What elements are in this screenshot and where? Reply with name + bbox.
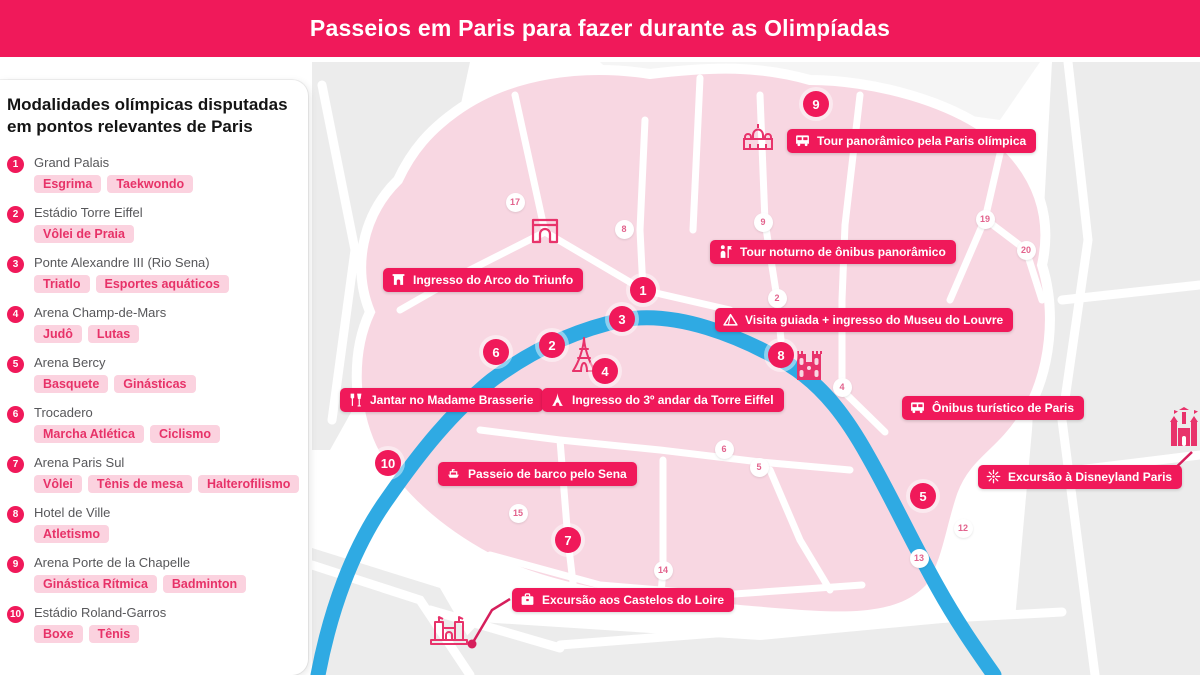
legend-item: 1Grand PalaisEsgrimaTaekwondo [7,155,308,193]
district-marker: 19 [976,210,995,229]
legend-item: 9Arena Porte de la ChapelleGinástica Rít… [7,555,308,593]
venue-number-badge: 3 [7,256,24,273]
sport-tag: Basquete [34,375,108,393]
tour-label-text: Tour noturno de ônibus panorâmico [740,245,946,259]
district-marker: 14 [654,561,673,580]
venue-marker: 8 [768,342,794,368]
sport-tag: Atletismo [34,525,109,543]
venue-name: Arena Paris Sul [34,455,299,470]
bus-icon [795,133,810,148]
sport-tags: Atletismo [34,525,110,543]
sport-tag: Badminton [163,575,246,593]
venue-name: Arena Bercy [34,355,196,370]
header-bar: Passeios em Paris para fazer durante as … [0,0,1200,57]
district-marker: 9 [754,213,773,232]
district-marker: 8 [615,220,634,239]
sport-tag: Triatlo [34,275,90,293]
briefcase-icon [520,592,535,607]
venue-name: Ponte Alexandre III (Rio Sena) [34,255,229,270]
sport-tag: Taekwondo [107,175,193,193]
sparkle-icon [986,469,1001,484]
venue-marker: 9 [803,91,829,117]
sport-tag: Tênis [89,625,140,643]
sport-tag: Ginástica Rítmica [34,575,157,593]
legend-title-line2: em pontos relevantes de Paris [7,117,253,136]
sport-tag: Vôlei [34,475,82,493]
sport-tag: Lutas [88,325,139,343]
legend-title-line1: Modalidades olímpicas disputadas [7,95,288,114]
tour-label: Tour panorâmico pela Paris olímpica [787,129,1036,153]
legend-item: 3Ponte Alexandre III (Rio Sena)TriatloEs… [7,255,308,293]
venue-name: Grand Palais [34,155,193,170]
venue-marker: 4 [592,358,618,384]
venue-number-badge: 4 [7,306,24,323]
legend-panel: Modalidades olímpicas disputadas em pont… [0,80,308,675]
tour-label-text: Ingresso do Arco do Triunfo [413,273,573,287]
notre-dame-icon [793,348,825,387]
sport-tag: Halterofilismo [198,475,299,493]
tour-label-text: Excursão à Disneyland Paris [1008,470,1172,484]
legend-item: 10Estádio Roland-GarrosBoxeTênis [7,605,308,643]
sport-tag: Marcha Atlética [34,425,144,443]
sport-tags: Vôlei de Praia [34,225,143,243]
venue-name: Estádio Torre Eiffel [34,205,143,220]
sport-tags: EsgrimaTaekwondo [34,175,193,193]
tour-label: Ônibus turístico de Paris [902,396,1084,420]
sport-tags: TriatloEsportes aquáticos [34,275,229,293]
legend-item: 5Arena BercyBasqueteGinásticas [7,355,308,393]
legend-item: 4Arena Champ-de-MarsJudôLutas [7,305,308,343]
legend-item: 2Estádio Torre EiffelVôlei de Praia [7,205,308,243]
sport-tag: Ciclismo [150,425,220,443]
venue-name: Arena Porte de la Chapelle [34,555,246,570]
district-marker: 15 [509,504,528,523]
sport-tag: Esportes aquáticos [96,275,229,293]
tour-label: Tour noturno de ônibus panorâmico [710,240,956,264]
district-marker: 12 [954,519,973,538]
sport-tag: Judô [34,325,82,343]
venue-number-badge: 10 [7,606,24,623]
venue-number-badge: 8 [7,506,24,523]
venue-number-badge: 5 [7,356,24,373]
venue-name: Arena Champ-de-Mars [34,305,166,320]
venue-number-badge: 2 [7,206,24,223]
boat-icon [446,466,461,481]
venue-number-badge: 6 [7,406,24,423]
venue-marker: 2 [539,332,565,358]
arch-icon [391,272,406,287]
sport-tags: BasqueteGinásticas [34,375,196,393]
loire-castle-icon [428,610,470,651]
legend-title: Modalidades olímpicas disputadas em pont… [7,94,308,139]
sacre-coeur-icon [741,120,775,157]
venue-marker: 10 [375,450,401,476]
tour-label-text: Jantar no Madame Brasserie [370,393,533,407]
sport-tags: Ginástica RítmicaBadminton [34,575,246,593]
legend-item: 8Hotel de VilleAtletismo [7,505,308,543]
sport-tag: Vôlei de Praia [34,225,134,243]
venue-name: Hotel de Ville [34,505,110,520]
district-marker: 6 [715,440,734,459]
sport-tag: Ginásticas [114,375,195,393]
bus-icon [910,400,925,415]
tour-label-text: Excursão aos Castelos do Loire [542,593,724,607]
tour-label: Jantar no Madame Brasserie [340,388,543,412]
venue-number-badge: 9 [7,556,24,573]
tour-label-text: Passeio de barco pelo Sena [468,467,627,481]
venue-marker: 7 [555,527,581,553]
venue-marker: 1 [630,277,656,303]
sport-tag: Esgrima [34,175,101,193]
district-marker: 13 [910,549,929,568]
tour-label: Excursão à Disneyland Paris [978,465,1182,489]
venue-number-badge: 7 [7,456,24,473]
tour-label-text: Tour panorâmico pela Paris olímpica [817,134,1026,148]
fork-glass-icon [348,392,363,407]
district-marker: 5 [750,458,769,477]
tour-label: Excursão aos Castelos do Loire [512,588,734,612]
eiffel-icon [550,392,565,407]
venue-name: Estádio Roland-Garros [34,605,166,620]
tour-label: Passeio de barco pelo Sena [438,462,637,486]
sport-tag: Boxe [34,625,83,643]
district-marker: 2 [768,289,787,308]
tour-label-text: Ônibus turístico de Paris [932,401,1074,415]
sport-tag: Tênis de mesa [88,475,192,493]
person-flag-icon [718,244,733,259]
district-marker: 20 [1017,241,1036,260]
page-title: Passeios em Paris para fazer durante as … [310,15,890,42]
venue-number-badge: 1 [7,156,24,173]
sport-tags: Marcha AtléticaCiclismo [34,425,220,443]
pyramid-icon [723,312,738,327]
tour-label-text: Ingresso do 3º andar da Torre Eiffel [572,393,774,407]
sport-tags: BoxeTênis [34,625,166,643]
tour-label-text: Visita guiada + ingresso do Museu do Lou… [745,313,1003,327]
tour-label: Ingresso do 3º andar da Torre Eiffel [542,388,784,412]
disney-castle-icon [1166,406,1200,453]
district-marker: 4 [833,378,852,397]
legend-item: 7Arena Paris SulVôleiTênis de mesaHalter… [7,455,308,493]
arc-de-triomphe-icon [530,216,560,249]
sport-tags: JudôLutas [34,325,166,343]
venue-list: 1Grand PalaisEsgrimaTaekwondo2Estádio To… [7,155,308,643]
district-marker: 17 [506,193,525,212]
venue-marker: 5 [910,483,936,509]
venue-marker: 6 [483,339,509,365]
venue-name: Trocadero [34,405,220,420]
sport-tags: VôleiTênis de mesaHalterofilismo [34,475,299,493]
venue-marker: 3 [609,306,635,332]
legend-item: 6TrocaderoMarcha AtléticaCiclismo [7,405,308,443]
tour-label: Visita guiada + ingresso do Museu do Lou… [715,308,1013,332]
tour-label: Ingresso do Arco do Triunfo [383,268,583,292]
